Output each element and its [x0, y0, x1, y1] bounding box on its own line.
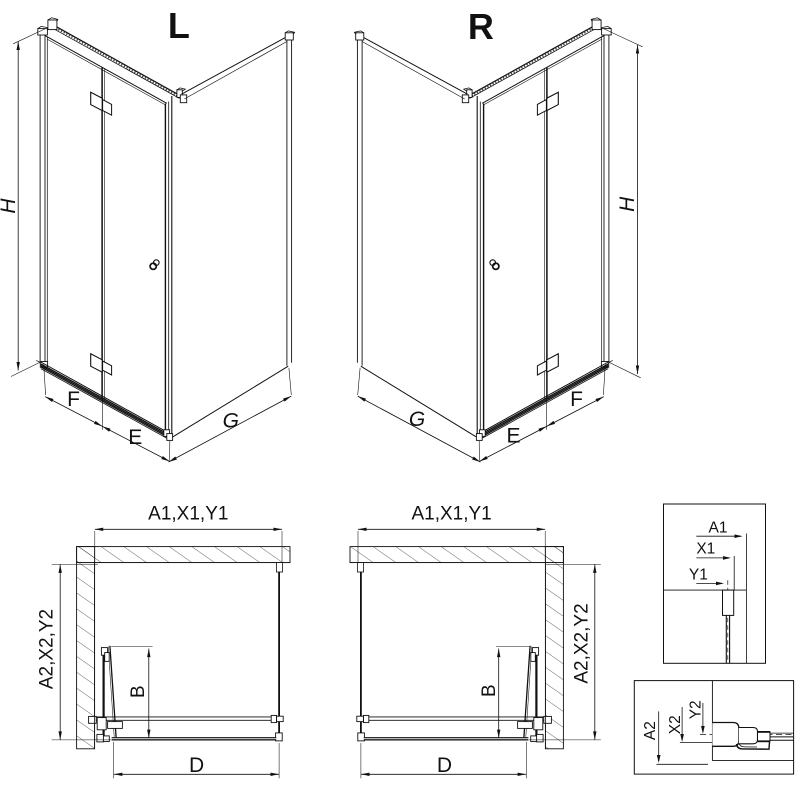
svg-text:A2,X2,Y2: A2,X2,Y2: [572, 603, 593, 683]
svg-text:Y1: Y1: [689, 567, 708, 584]
svg-text:F: F: [67, 388, 80, 411]
svg-text:L: L: [168, 5, 190, 46]
svg-text:A1,X1,Y1: A1,X1,Y1: [148, 504, 228, 525]
svg-text:B: B: [479, 684, 500, 697]
svg-text:D: D: [189, 754, 204, 777]
svg-text:G: G: [409, 408, 425, 431]
svg-text:G: G: [223, 410, 239, 433]
svg-text:D: D: [437, 754, 452, 777]
svg-text:E: E: [128, 426, 142, 449]
svg-text:R: R: [468, 6, 494, 47]
svg-text:A2: A2: [642, 721, 659, 740]
svg-text:A1: A1: [709, 520, 728, 537]
svg-text:A2,X2,Y2: A2,X2,Y2: [36, 609, 57, 689]
svg-text:F: F: [570, 388, 583, 411]
svg-text:E: E: [506, 425, 520, 448]
svg-text:H: H: [616, 196, 639, 212]
svg-text:H: H: [0, 198, 20, 214]
svg-text:X1: X1: [696, 541, 715, 558]
svg-text:X2: X2: [667, 715, 684, 734]
svg-text:A1,X1,Y1: A1,X1,Y1: [411, 504, 491, 525]
svg-text:B: B: [128, 685, 149, 698]
svg-text:Y2: Y2: [687, 700, 704, 719]
